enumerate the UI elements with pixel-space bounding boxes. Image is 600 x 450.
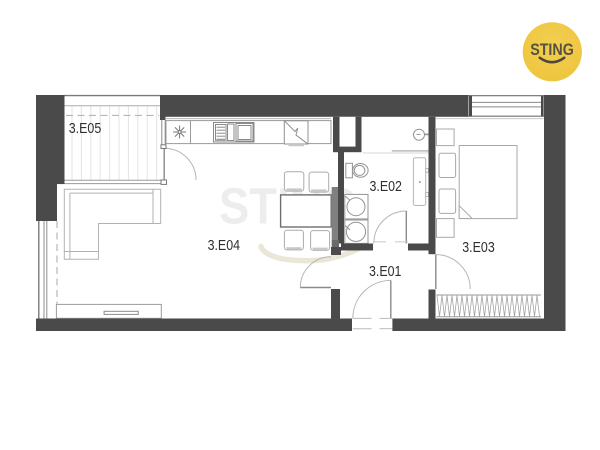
svg-text:3.E02: 3.E02: [369, 178, 401, 194]
svg-text:3.E05: 3.E05: [69, 120, 102, 136]
svg-text:STING: STING: [530, 41, 574, 59]
svg-text:3.E03: 3.E03: [462, 239, 494, 255]
svg-text:3.E04: 3.E04: [208, 237, 241, 253]
svg-text:3.E01: 3.E01: [369, 263, 401, 279]
